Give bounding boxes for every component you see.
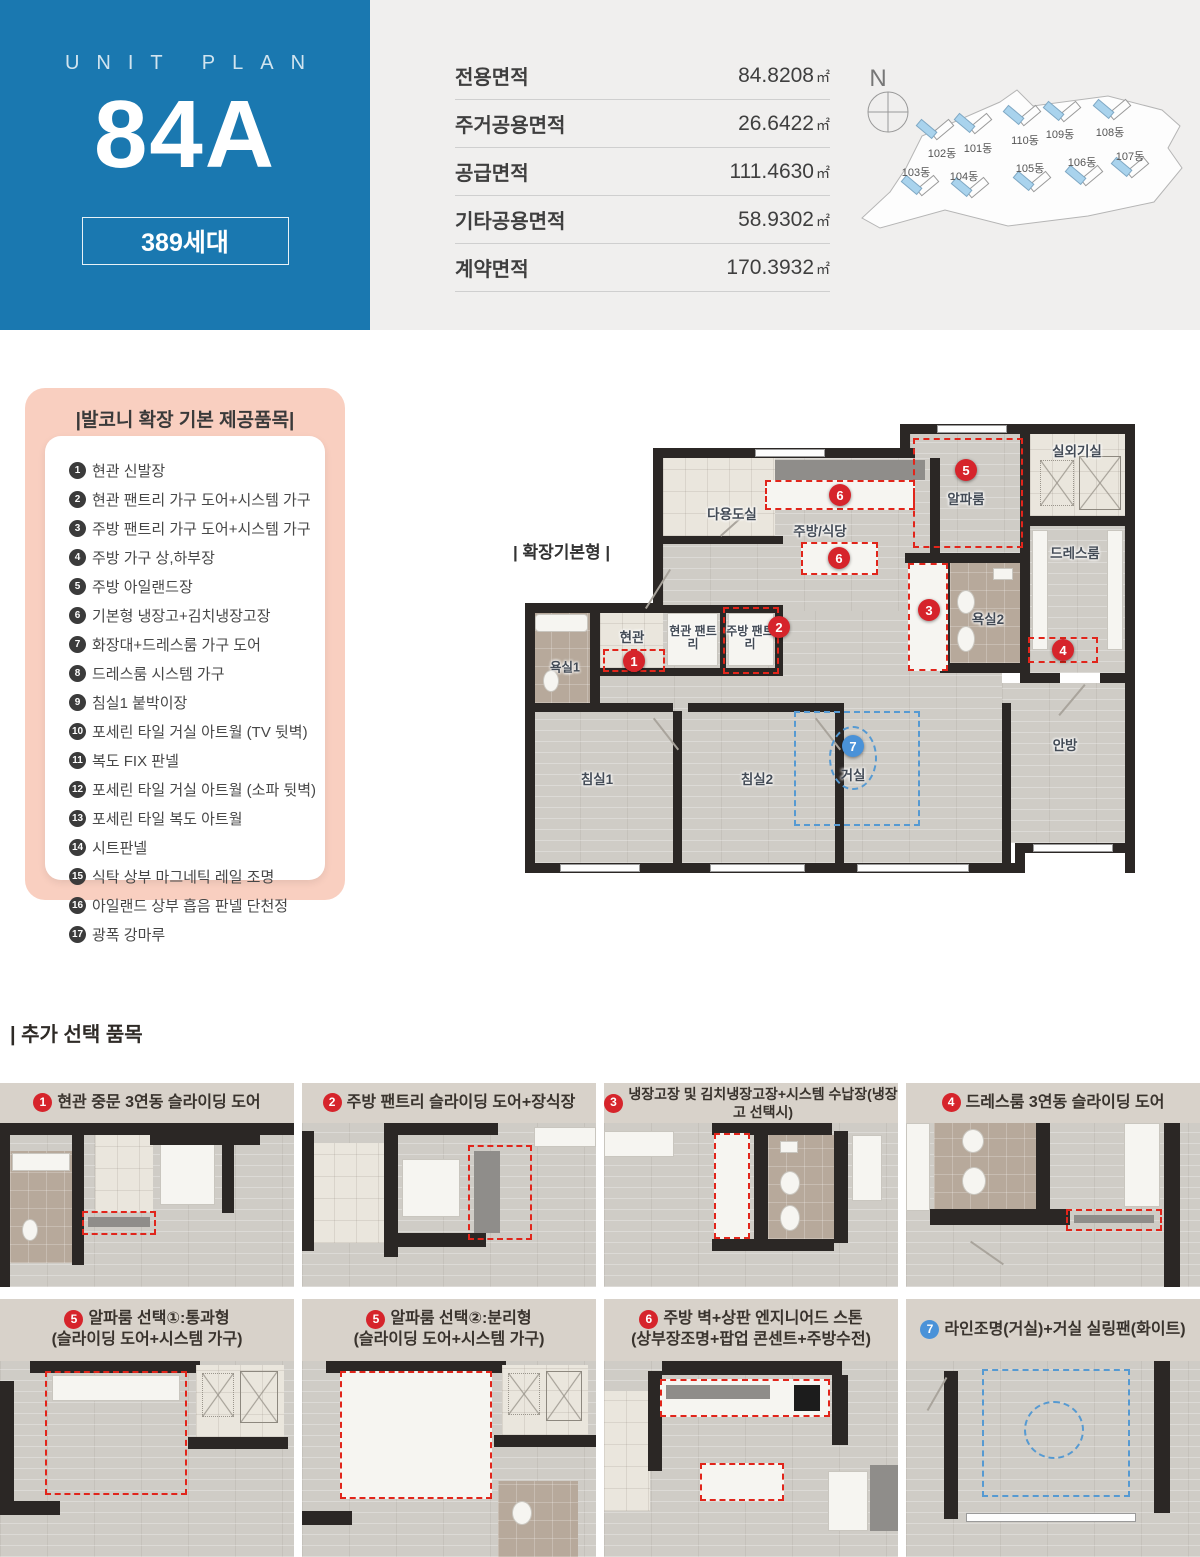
thumb-toilet	[22, 1219, 38, 1241]
building-label: 108동	[1096, 127, 1124, 139]
list-item: 7화장대+드레스룸 가구 도어	[69, 630, 315, 659]
thumb-xbox	[202, 1373, 234, 1417]
thumb-cabinet	[402, 1159, 460, 1217]
item-text: 포세린 타일 거실 아트월 (소파 뒷벽)	[92, 779, 316, 800]
area-label: 전용면적	[455, 61, 615, 90]
option-thumb-plan	[906, 1361, 1200, 1557]
window	[755, 449, 825, 457]
options-section-title: | 추가 선택 품목	[10, 1018, 143, 1047]
building-label: 109동	[1046, 129, 1074, 141]
option-card-header: 4드레스룸 3연동 슬라이딩 도어	[906, 1083, 1200, 1123]
area-value: 111.4630㎡	[615, 160, 830, 184]
unit-plan-page: UNIT PLAN 84A 389세대 전용면적 84.8208㎡ 주거공용면적…	[0, 0, 1200, 1557]
list-item: 15식탁 상부 마그네틱 레일 조명	[69, 862, 315, 891]
area-number: 58.9302	[738, 208, 814, 231]
area-label: 주거공용면적	[455, 109, 615, 138]
thumb-wall	[1154, 1361, 1170, 1513]
table-row: 공급면적 111.4630㎡	[455, 148, 830, 196]
item-text: 현관 신발장	[92, 460, 165, 481]
thumb-xbox	[240, 1371, 278, 1423]
thumb-window	[966, 1513, 1136, 1522]
wall	[1020, 673, 1060, 683]
option-title: 라인조명(거실)+거실 실링팬(화이트)	[944, 1320, 1185, 1341]
area-number: 170.3932	[726, 256, 814, 279]
thumb-highlight	[468, 1145, 532, 1240]
item-text: 드레스룸 시스템 가구	[92, 663, 225, 684]
thumb-toilet	[780, 1171, 800, 1195]
thumb-counter	[534, 1127, 596, 1147]
room-label: 현관 팬트리	[666, 625, 720, 651]
window	[710, 864, 805, 872]
thumb-wall	[72, 1135, 84, 1265]
thumb-cabinet	[1124, 1123, 1160, 1207]
room-label: 침실2	[741, 768, 773, 788]
item-text: 식탁 상부 마그네틱 레일 조명	[92, 866, 274, 887]
wall	[940, 663, 1030, 673]
item-number: 1	[69, 462, 86, 479]
thumb-wall	[222, 1135, 234, 1213]
thumb-toilet	[962, 1167, 986, 1195]
room-label: 거실	[841, 764, 866, 784]
list-item: 14시트판넬	[69, 833, 315, 862]
item-text: 아일랜드 상부 흡음 판넬 단천정	[92, 895, 288, 916]
option-thumb-plan	[0, 1123, 294, 1287]
alpha-room-highlight	[913, 438, 1023, 548]
thumb-entry	[312, 1143, 384, 1243]
item-number: 16	[69, 897, 86, 914]
option-thumb-plan	[906, 1123, 1200, 1287]
building-label: 103동	[902, 167, 930, 179]
item-number: 11	[69, 752, 86, 769]
thumb-counter-cabinet	[666, 1385, 770, 1399]
thumb-wall	[0, 1123, 10, 1287]
toilet	[957, 626, 975, 652]
table-row: 전용면적 84.8208㎡	[455, 52, 830, 100]
room-label: 안방	[1053, 734, 1078, 754]
area-unit: ㎡	[816, 69, 830, 85]
area-unit: ㎡	[816, 213, 830, 229]
thumb-wall	[944, 1371, 958, 1519]
thumb-wall	[302, 1131, 314, 1251]
households-badge: 389세대	[82, 217, 289, 265]
option-card-header: 5알파룸 선택②:분리형 (슬라이딩 도어+시스템 가구)	[302, 1299, 596, 1361]
unit-header-box: UNIT PLAN 84A 389세대	[0, 0, 370, 330]
wall	[533, 703, 673, 712]
option-card-7: 6주방 벽+상판 엔지니어드 스톤 (상부장조명+팝업 콘센트+주방수전)	[604, 1299, 898, 1557]
balcony-included-panel: |발코니 확장 기본 제공품목| 1현관 신발장 2현관 팬트리 가구 도어+시…	[25, 388, 345, 900]
option-number-badge: 7	[920, 1320, 939, 1339]
table-row: 계약면적 170.3932㎡	[455, 244, 830, 292]
plan-marker-6b: 6	[828, 547, 850, 569]
thumb-xbox	[508, 1373, 540, 1415]
thumb-wall	[302, 1511, 352, 1525]
thumb-bath	[498, 1481, 578, 1557]
floor-utility-room	[663, 458, 775, 536]
list-item: 13포세린 타일 복도 아트월	[69, 804, 315, 833]
option-card-header: 2주방 팬트리 슬라이딩 도어+장식장	[302, 1083, 596, 1123]
plan-marker-5: 5	[955, 459, 977, 481]
list-item: 9침실1 붙박이장	[69, 688, 315, 717]
thumb-cabinet	[160, 1143, 215, 1205]
item-number: 17	[69, 926, 86, 943]
thumb-xbox	[546, 1371, 582, 1421]
table-row: 주거공용면적 26.6422㎡	[455, 100, 830, 148]
item-number: 12	[69, 781, 86, 798]
option-number-badge: 3	[604, 1094, 623, 1113]
option-card-5: 5알파룸 선택①:통과형 (슬라이딩 도어+시스템 가구)	[0, 1299, 294, 1557]
window	[1033, 844, 1113, 852]
thumb-island-highlight	[700, 1463, 784, 1501]
wall	[525, 603, 535, 873]
thumb-cabinet	[828, 1471, 868, 1531]
list-item: 3주방 팬트리 가구 도어+시스템 가구	[69, 514, 315, 543]
option-title: 드레스룸 3연동 슬라이딩 도어	[966, 1093, 1165, 1114]
thumb-bath	[768, 1135, 834, 1239]
plan-marker-7: 7	[842, 735, 864, 757]
area-label: 계약면적	[455, 253, 615, 282]
plan-marker-6a: 6	[829, 484, 851, 506]
option-number-badge: 5	[366, 1310, 385, 1329]
top-band: UNIT PLAN 84A 389세대 전용면적 84.8208㎡ 주거공용면적…	[0, 0, 1200, 330]
kitchen-pantry-highlight	[723, 607, 779, 674]
plan-marker-1: 1	[623, 650, 645, 672]
thumb-entry	[95, 1135, 153, 1213]
plan-marker-2: 2	[768, 616, 790, 638]
wall	[1020, 516, 1135, 526]
thumb-wall	[930, 1209, 1070, 1225]
item-text: 화장대+드레스룸 가구 도어	[92, 634, 261, 655]
thumb-counter	[604, 1131, 674, 1157]
area-label: 공급면적	[455, 157, 615, 186]
item-text: 주방 가구 상,하부장	[92, 547, 215, 568]
outdoor-unit-box	[1040, 460, 1074, 506]
wall	[1100, 673, 1135, 683]
option-thumb-plan	[604, 1123, 898, 1287]
item-text: 주방 팬트리 가구 도어+시스템 가구	[92, 518, 311, 539]
compass-icon: N	[868, 65, 908, 132]
thumb-wall	[398, 1123, 498, 1135]
option-card-6: 5알파룸 선택②:분리형 (슬라이딩 도어+시스템 가구)	[302, 1299, 596, 1557]
thumb-fan-circle	[1024, 1401, 1084, 1459]
list-item: 12포세린 타일 거실 아트월 (소파 뒷벽)	[69, 775, 315, 804]
options-row-1: 1현관 중문 3연동 슬라이딩 도어 2주방 팬트리 슬라이딩 도어+장식	[0, 1083, 1200, 1287]
floor-plan: | 확장기본형 |	[505, 418, 1135, 878]
thumb-door-line	[970, 1241, 1004, 1266]
option-card-header: 3냉장고장 및 김치냉장고장+시스템 수납장(냉장고 선택시)	[604, 1083, 898, 1123]
options-row-2: 5알파룸 선택①:통과형 (슬라이딩 도어+시스템 가구) 5알파룸 선택②:분…	[0, 1299, 1200, 1557]
room-label: 현관	[620, 626, 645, 646]
thumb-highlight	[340, 1371, 492, 1499]
plan-variant-label: | 확장기본형 |	[513, 538, 610, 563]
list-item: 11복도 FIX 판넬	[69, 746, 315, 775]
thumb-bath	[934, 1123, 1044, 1211]
option-number-badge: 6	[639, 1310, 658, 1329]
option-thumb-plan	[302, 1123, 596, 1287]
thumb-wall	[754, 1131, 768, 1241]
option-card-1: 1현관 중문 3연동 슬라이딩 도어	[0, 1083, 294, 1287]
thumb-toilet	[780, 1205, 800, 1231]
item-number: 8	[69, 665, 86, 682]
thumb-wall	[662, 1361, 842, 1375]
building-label: 102동	[928, 148, 956, 160]
option-title: 주방 벽+상판 엔지니어드 스톤	[663, 1309, 862, 1330]
option-number-badge: 4	[942, 1093, 961, 1112]
wall	[653, 536, 783, 544]
option-number-badge: 5	[64, 1310, 83, 1329]
window	[937, 425, 1007, 433]
option-number-badge: 1	[33, 1093, 52, 1112]
item-text: 광폭 강마루	[92, 924, 165, 945]
option-number-badge: 2	[323, 1093, 342, 1112]
item-text: 현관 팬트리 가구 도어+시스템 가구	[92, 489, 311, 510]
thumb-utility	[604, 1391, 650, 1511]
window	[857, 864, 969, 872]
item-number: 15	[69, 868, 86, 885]
list-item: 16아일랜드 상부 흡음 판넬 단천정	[69, 891, 315, 920]
dressroom-cabinet	[1107, 530, 1123, 650]
thumb-sink	[780, 1141, 798, 1153]
option-thumb-plan	[302, 1361, 596, 1557]
building-label: 105동	[1016, 163, 1044, 175]
list-item: 17광폭 강마루	[69, 920, 315, 949]
option-title: 현관 중문 3연동 슬라이딩 도어	[57, 1093, 260, 1114]
area-value: 58.9302㎡	[615, 208, 830, 232]
room-label: 침실1	[581, 768, 613, 788]
option-card-header: 1현관 중문 3연동 슬라이딩 도어	[0, 1083, 294, 1123]
option-card-3: 3냉장고장 및 김치냉장고장+시스템 수납장(냉장고 선택시)	[604, 1083, 898, 1287]
wall	[673, 711, 682, 873]
list-item: 1현관 신발장	[69, 456, 315, 485]
thumb-highlight	[45, 1371, 187, 1495]
thumb-highlight	[1066, 1209, 1162, 1231]
item-number: 2	[69, 491, 86, 508]
building-label: 104동	[950, 171, 978, 183]
option-card-header: 5알파룸 선택①:통과형 (슬라이딩 도어+시스템 가구)	[0, 1299, 294, 1361]
thumb-wall	[1164, 1123, 1180, 1287]
option-title: 알파룸 선택②:분리형	[390, 1309, 531, 1330]
site-map: N 102동 101동 110동 109동 108동 103동 104동 105…	[850, 60, 1195, 265]
building-label: 106동	[1068, 157, 1096, 169]
thumb-tub	[12, 1153, 70, 1171]
thumb-toilet	[512, 1501, 532, 1525]
item-text: 침실1 붙박이장	[92, 692, 187, 713]
thumb-toilet	[962, 1129, 984, 1153]
unit-plan-label: UNIT PLAN	[48, 52, 322, 75]
thumb-wall	[834, 1131, 848, 1243]
area-unit: ㎡	[816, 117, 830, 133]
kitchen-upper-cabinet	[775, 460, 925, 480]
building-label: 107동	[1116, 151, 1144, 163]
item-text: 포세린 타일 거실 아트월 (TV 뒷벽)	[92, 721, 308, 742]
option-thumb-plan	[604, 1361, 898, 1557]
thumb-wall	[0, 1123, 294, 1135]
area-number: 26.6422	[738, 112, 814, 135]
wall	[1125, 424, 1135, 873]
area-value: 84.8208㎡	[615, 64, 830, 88]
sink	[993, 568, 1013, 580]
thumb-wall	[712, 1239, 834, 1251]
option-card-header: 6주방 벽+상판 엔지니어드 스톤 (상부장조명+팝업 콘센트+주방수전)	[604, 1299, 898, 1361]
building-label: 101동	[964, 143, 992, 155]
area-number: 84.8208	[738, 64, 814, 87]
option-card-2: 2주방 팬트리 슬라이딩 도어+장식장	[302, 1083, 596, 1287]
area-number: 111.4630	[730, 160, 814, 183]
thumb-highlight	[714, 1133, 750, 1239]
option-card-header: 7라인조명(거실)+거실 실링팬(화이트)	[906, 1299, 1200, 1361]
area-label: 기타공용면적	[455, 205, 615, 234]
area-unit: ㎡	[816, 165, 830, 181]
room-label: 주방/식당	[793, 520, 846, 540]
item-number: 14	[69, 839, 86, 856]
option-title: 주방 팬트리 슬라이딩 도어+장식장	[347, 1093, 576, 1114]
list-item: 10포세린 타일 거실 아트월 (TV 뒷벽)	[69, 717, 315, 746]
list-item: 6기본형 냉장고+김치냉장고장	[69, 601, 315, 630]
wall	[590, 611, 600, 711]
svg-text:N: N	[869, 65, 886, 92]
wall	[1002, 703, 1011, 873]
wall	[905, 553, 1030, 563]
list-item: 4주방 가구 상,하부장	[69, 543, 315, 572]
item-number: 10	[69, 723, 86, 740]
window	[560, 864, 640, 872]
list-item: 8드레스룸 시스템 가구	[69, 659, 315, 688]
room-label: 실외기실	[1052, 440, 1102, 460]
dressroom-cabinet	[1032, 530, 1048, 650]
thumb-wall	[0, 1381, 14, 1511]
item-number: 9	[69, 694, 86, 711]
option-card-4: 4드레스룸 3연동 슬라이딩 도어	[906, 1083, 1200, 1287]
option-subtitle: (슬라이딩 도어+시스템 가구)	[354, 1330, 545, 1351]
option-thumb-plan	[0, 1361, 294, 1557]
room-label: 드레스룸	[1050, 542, 1100, 562]
thumb-cooktop	[794, 1385, 820, 1411]
thumb-cabinet	[906, 1123, 930, 1211]
item-number: 13	[69, 810, 86, 827]
wall	[900, 424, 1135, 434]
room-label: 다용도실	[707, 503, 757, 523]
thumb-appliance	[870, 1465, 898, 1531]
item-number: 6	[69, 607, 86, 624]
item-number: 3	[69, 520, 86, 537]
item-number: 7	[69, 636, 86, 653]
balcony-panel-title: |발코니 확장 기본 제공품목|	[25, 405, 345, 432]
option-title: 냉장고장 및 김치냉장고장+시스템 수납장(냉장고 선택시)	[628, 1085, 898, 1121]
area-unit: ㎡	[816, 261, 830, 277]
item-number: 4	[69, 549, 86, 566]
thumb-wall	[494, 1435, 596, 1447]
plan-marker-4: 4	[1052, 639, 1074, 661]
thumb-highlight	[82, 1211, 156, 1235]
thumb-wall	[188, 1437, 288, 1449]
area-value: 170.3932㎡	[615, 256, 830, 280]
item-text: 포세린 타일 복도 아트월	[92, 808, 243, 829]
thumb-wall	[832, 1375, 848, 1445]
area-table: 전용면적 84.8208㎡ 주거공용면적 26.6422㎡ 공급면적 111.4…	[455, 52, 830, 292]
thumb-wall	[150, 1135, 260, 1145]
area-value: 26.6422㎡	[615, 112, 830, 136]
room-label: 욕실2	[972, 608, 1004, 628]
room-label: 욕실1	[550, 657, 580, 676]
thumb-wall	[384, 1123, 398, 1257]
option-title: 알파룸 선택①:통과형	[88, 1309, 229, 1330]
option-subtitle: (슬라이딩 도어+시스템 가구)	[52, 1330, 243, 1351]
bathtub	[535, 614, 588, 632]
building-label: 110동	[1011, 135, 1039, 147]
balcony-items-card: 1현관 신발장 2현관 팬트리 가구 도어+시스템 가구 3주방 팬트리 가구 …	[45, 436, 325, 880]
list-item: 5주방 아일랜드장	[69, 572, 315, 601]
item-text: 복도 FIX 판넬	[92, 750, 179, 771]
list-item: 2현관 팬트리 가구 도어+시스템 가구	[69, 485, 315, 514]
option-card-8: 7라인조명(거실)+거실 실링팬(화이트)	[906, 1299, 1200, 1557]
thumb-cabinet	[852, 1135, 882, 1201]
table-row: 기타공용면적 58.9302㎡	[455, 196, 830, 244]
item-text: 주방 아일랜드장	[92, 576, 193, 597]
item-text: 기본형 냉장고+김치냉장고장	[92, 605, 271, 626]
option-subtitle: (상부장조명+팝업 콘센트+주방수전)	[631, 1330, 871, 1351]
item-text: 시트판넬	[92, 837, 147, 858]
item-number: 5	[69, 578, 86, 595]
thumb-wall	[1036, 1123, 1050, 1211]
outdoor-unit-box	[1079, 456, 1121, 510]
unit-code: 84A	[94, 87, 276, 183]
plan-marker-3: 3	[918, 599, 940, 621]
